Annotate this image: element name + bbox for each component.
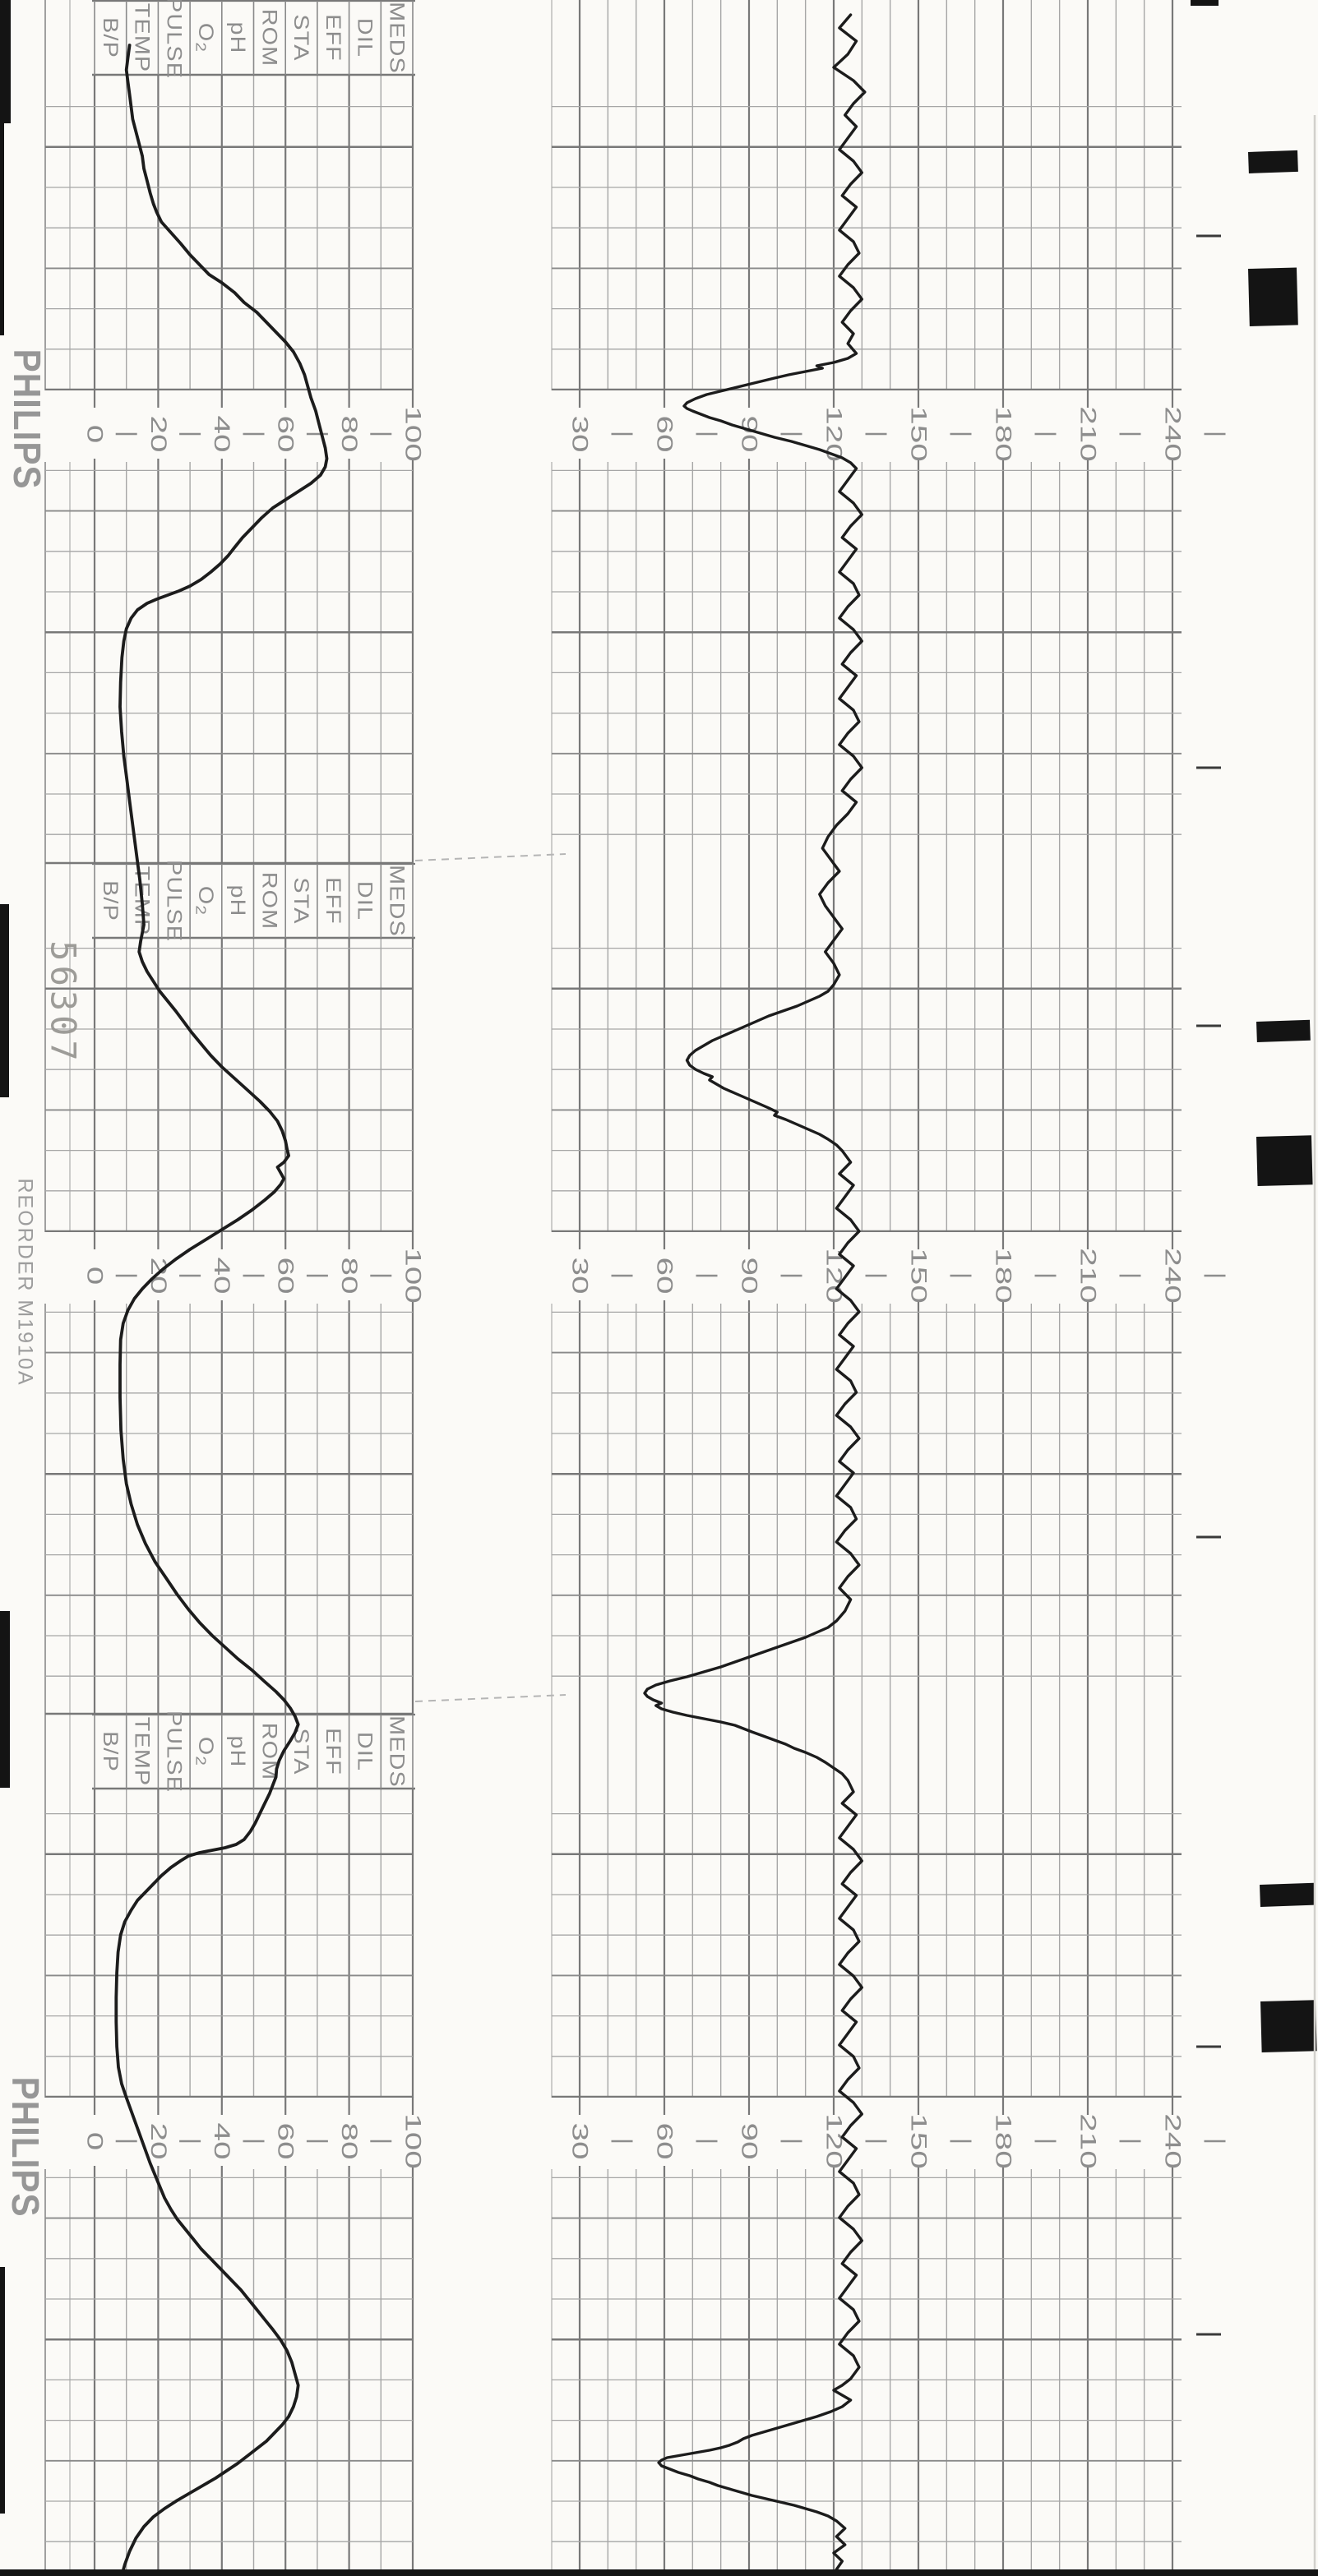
fhr-scale-number-180: 180 — [991, 2113, 1015, 2169]
serial-number-stamp: 56307 — [44, 940, 84, 1064]
fhr-scale-number-240: 240 — [1160, 1248, 1185, 1304]
toco-annotation-label-TEMP: TEMP — [131, 3, 154, 72]
toco-annotation-label-pH: pH — [226, 884, 249, 916]
fhr-scale-number-210: 210 — [1075, 2113, 1100, 2169]
registration-bar-mark — [1260, 1883, 1315, 1907]
toco-scale-number-0: 0 — [82, 2132, 107, 2151]
chart-grid-and-traces: MEDSDILEFFSTAROMpHO2PULSETEMPB/PMEDSDILE… — [0, 0, 1318, 2576]
scan-edge-artifact — [0, 0, 11, 123]
toco-annotation-label-pH: pH — [226, 21, 249, 53]
toco-annotation-label-DIL: DIL — [354, 18, 377, 58]
toco-scale-number-60: 60 — [273, 2122, 298, 2159]
fhr-scale-number-150: 150 — [906, 406, 931, 462]
toco-annotation-label-ROM: ROM — [258, 9, 281, 67]
scan-edge-artifact — [0, 122, 4, 335]
toco-annotation-label-PULSE: PULSE — [163, 0, 186, 79]
fhr-scale-number-150: 150 — [906, 1248, 931, 1304]
toco-scale-number-80: 80 — [337, 415, 362, 452]
scan-edge-artifact — [1191, 0, 1219, 6]
toco-annotation-label-ROM: ROM — [258, 872, 281, 930]
philips-logo-bottom: PHILIPS — [3, 2076, 48, 2217]
fhr-scale-number-90: 90 — [737, 415, 761, 452]
toco-annotation-label-DIL: DIL — [354, 881, 377, 921]
toco-scale-number-80: 80 — [337, 1257, 362, 1294]
toco-scale-number-40: 40 — [210, 415, 234, 452]
registration-square-mark — [1256, 1135, 1313, 1186]
fhr-scale-number-210: 210 — [1075, 1248, 1100, 1304]
fhr-scale-number-60: 60 — [652, 1257, 677, 1294]
fhr-scale-number-210: 210 — [1075, 406, 1100, 462]
fhr-scale-number-240: 240 — [1160, 2113, 1185, 2169]
toco-scale-number-0: 0 — [82, 1267, 107, 1286]
toco-scale-number-80: 80 — [337, 2122, 362, 2159]
toco-annotation-label-DIL: DIL — [354, 1732, 377, 1771]
registration-square-mark — [1248, 267, 1298, 326]
fhr-scale-number-30: 30 — [567, 2122, 592, 2159]
toco-annotation-label-MEDS: MEDS — [386, 865, 409, 937]
fhr-scale-number-240: 240 — [1160, 406, 1185, 462]
fhr-scale-number-150: 150 — [906, 2113, 931, 2169]
toco-annotation-label-STA: STA — [290, 14, 313, 61]
fhr-scale-number-180: 180 — [991, 1248, 1015, 1304]
toco-annotation-label-EFF: EFF — [321, 877, 345, 925]
registration-square-mark — [1260, 2000, 1317, 2052]
philips-logo-top: PHILIPS — [5, 349, 49, 489]
toco-annotation-label-TEMP: TEMP — [131, 1717, 154, 1786]
toco-scale-number-60: 60 — [273, 1257, 298, 1294]
fhr-scale-band — [547, 1232, 1236, 1304]
toco-annotation-label-MEDS: MEDS — [386, 1715, 409, 1788]
toco-scale-number-100: 100 — [400, 1248, 425, 1304]
fhr-scale-number-90: 90 — [737, 1257, 761, 1294]
toco-annotation-label-EFF: EFF — [321, 1728, 345, 1775]
toco-scale-number-40: 40 — [210, 1257, 234, 1294]
toco-scale-number-100: 100 — [400, 2113, 425, 2169]
fhr-scale-number-30: 30 — [567, 415, 592, 452]
reorder-text: REORDER M1910A — [13, 1178, 37, 1386]
registration-bar-mark — [1248, 150, 1298, 173]
toco-scale-number-20: 20 — [146, 2122, 170, 2159]
toco-scale-number-60: 60 — [273, 415, 298, 452]
toco-annotation-label-pH: pH — [226, 1735, 249, 1767]
toco-annotation-label-B-P: B/P — [99, 880, 122, 921]
toco-annotation-label-EFF: EFF — [321, 14, 345, 62]
fhr-scale-number-120: 120 — [821, 2113, 846, 2169]
toco-annotation-label-B-P: B/P — [99, 17, 122, 58]
scan-edge-artifact — [0, 1611, 10, 1788]
registration-bar-mark — [1256, 1020, 1311, 1042]
toco-scale-number-20: 20 — [146, 1257, 170, 1294]
toco-annotation-label-PULSE: PULSE — [163, 860, 186, 942]
fhr-scale-number-30: 30 — [567, 1257, 592, 1294]
fhr-scale-number-60: 60 — [652, 2122, 677, 2159]
toco-scale-number-100: 100 — [400, 406, 425, 462]
fhr-scale-band — [547, 390, 1236, 462]
toco-annotation-label-STA: STA — [290, 877, 313, 924]
fhr-scale-number-90: 90 — [737, 2122, 761, 2159]
toco-scale-number-0: 0 — [82, 425, 107, 444]
scan-edge-artifact — [0, 2267, 5, 2514]
fhr-scale-number-60: 60 — [652, 415, 677, 452]
toco-annotation-label-MEDS: MEDS — [386, 2, 409, 74]
toco-scale-number-20: 20 — [146, 415, 170, 452]
scan-edge-artifact — [0, 904, 9, 1097]
toco-annotation-label-PULSE: PULSE — [163, 1710, 186, 1793]
fhr-scale-number-180: 180 — [991, 406, 1015, 462]
scan-edge-artifact — [0, 2569, 1318, 2576]
fhr-scale-band — [547, 2098, 1236, 2169]
toco-annotation-label-B-P: B/P — [99, 1731, 122, 1772]
ctg-strip-paper: MEDSDILEFFSTAROMpHO2PULSETEMPB/PMEDSDILE… — [0, 0, 1318, 2576]
toco-scale-number-40: 40 — [210, 2122, 234, 2159]
